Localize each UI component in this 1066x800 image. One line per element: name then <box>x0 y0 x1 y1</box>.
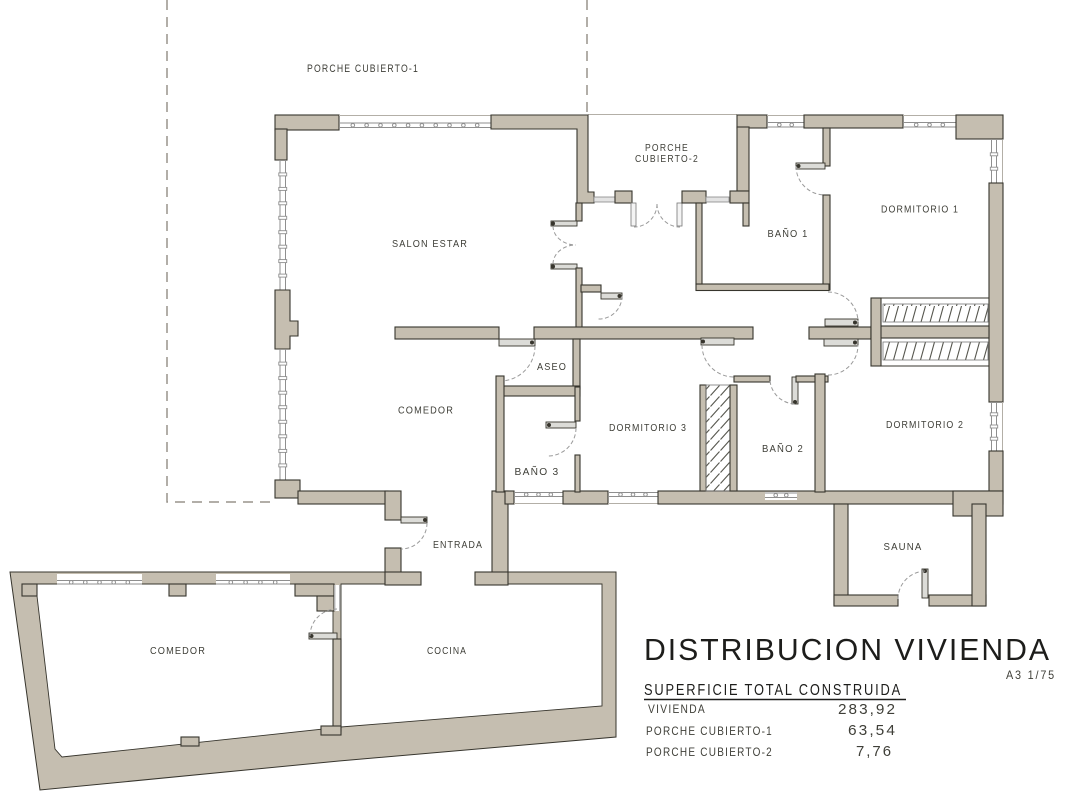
svg-text:PORCHE CUBIERTO-2: PORCHE CUBIERTO-2 <box>646 745 773 759</box>
svg-text:ASEO: ASEO <box>537 361 567 373</box>
svg-text:DORMITORIO 3: DORMITORIO 3 <box>609 422 687 434</box>
svg-text:DORMITORIO 2: DORMITORIO 2 <box>886 419 964 431</box>
svg-text:SALON ESTAR: SALON ESTAR <box>392 238 468 250</box>
svg-text:ENTRADA: ENTRADA <box>433 539 483 551</box>
svg-text:7,76: 7,76 <box>856 743 893 760</box>
svg-text:PORCHE CUBIERTO-1: PORCHE CUBIERTO-1 <box>307 63 419 75</box>
svg-text:SUPERFICIE TOTAL CONSTRUIDA: SUPERFICIE TOTAL CONSTRUIDA <box>644 682 902 699</box>
svg-text:CUBIERTO-2: CUBIERTO-2 <box>635 153 699 165</box>
svg-text:BAÑO 2: BAÑO 2 <box>762 442 804 455</box>
svg-text:COMEDOR: COMEDOR <box>150 645 206 657</box>
svg-text:63,54: 63,54 <box>848 722 897 739</box>
svg-text:COCINA: COCINA <box>427 645 467 657</box>
svg-text:DORMITORIO 1: DORMITORIO 1 <box>881 204 959 216</box>
svg-text:A3 1/75: A3 1/75 <box>1006 668 1056 682</box>
svg-text:BAÑO 1: BAÑO 1 <box>768 227 809 240</box>
svg-text:BAÑO 3: BAÑO 3 <box>515 465 560 478</box>
svg-text:COMEDOR: COMEDOR <box>398 405 454 417</box>
svg-text:PORCHE CUBIERTO-1: PORCHE CUBIERTO-1 <box>646 724 773 738</box>
svg-text:SAUNA: SAUNA <box>884 541 923 553</box>
svg-text:VIVIENDA: VIVIENDA <box>648 702 706 716</box>
svg-text:DISTRIBUCION VIVIENDA: DISTRIBUCION VIVIENDA <box>644 632 1051 667</box>
svg-text:283,92: 283,92 <box>838 701 897 718</box>
